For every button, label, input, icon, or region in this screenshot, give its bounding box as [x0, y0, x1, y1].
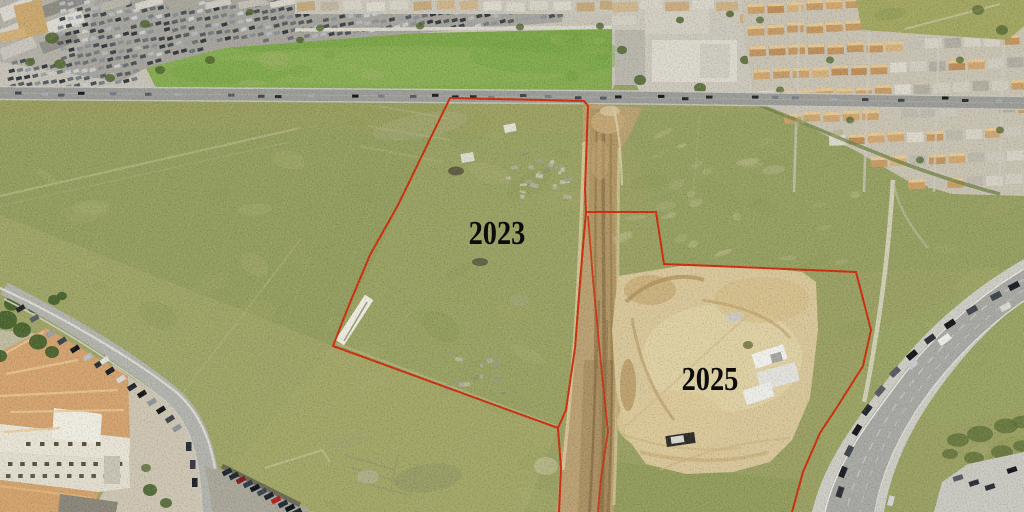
svg-text:2025: 2025	[682, 360, 739, 398]
svg-text:2023: 2023	[469, 214, 526, 252]
